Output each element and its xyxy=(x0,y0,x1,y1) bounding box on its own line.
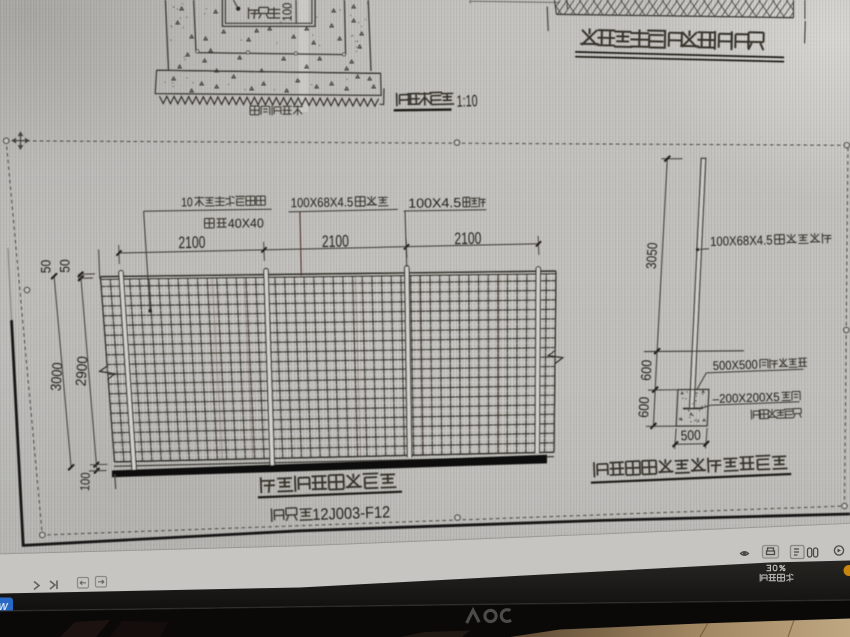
svg-text:2900: 2900 xyxy=(73,356,91,387)
svg-text:600: 600 xyxy=(635,396,652,418)
svg-text:100: 100 xyxy=(281,3,295,22)
svg-text:2100: 2100 xyxy=(322,232,349,252)
svg-text:12J003-F12: 12J003-F12 xyxy=(312,503,391,524)
svg-text:100X68X4.5: 100X68X4.5 xyxy=(291,194,354,210)
svg-text:100X68X4.5: 100X68X4.5 xyxy=(710,232,773,249)
svg-text:10: 10 xyxy=(181,195,193,209)
svg-text:100: 100 xyxy=(77,472,93,491)
svg-text:500: 500 xyxy=(680,427,701,444)
svg-text:500X500: 500X500 xyxy=(713,358,758,373)
svg-text:600: 600 xyxy=(637,359,654,381)
svg-text:50: 50 xyxy=(57,259,72,273)
svg-text:2100: 2100 xyxy=(178,233,205,253)
svg-text:2100: 2100 xyxy=(454,229,481,249)
svg-text:3000: 3000 xyxy=(49,362,67,392)
svg-text:40X40: 40X40 xyxy=(228,215,264,231)
svg-text:3050: 3050 xyxy=(643,242,660,269)
svg-text:50: 50 xyxy=(39,260,54,274)
svg-text:100X4.5: 100X4.5 xyxy=(408,195,461,211)
svg-text:1:10: 1:10 xyxy=(456,92,477,111)
